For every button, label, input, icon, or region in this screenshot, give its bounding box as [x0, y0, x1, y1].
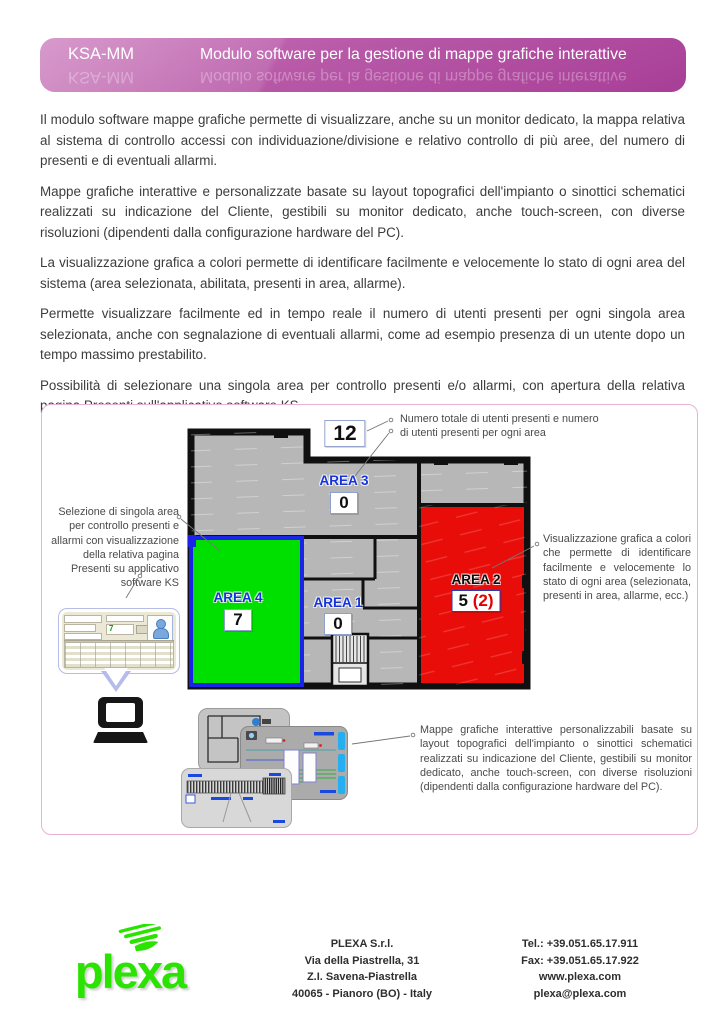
paragraph: La visualizzazione grafica a colori perm…	[40, 253, 685, 294]
body-text: Il modulo software mappe grafiche permet…	[40, 110, 685, 427]
product-code: KSA-MM	[68, 45, 200, 64]
ks-presenti-screenshot: 7	[62, 612, 176, 670]
page-title: Modulo software per la gestione di mappe…	[200, 46, 627, 64]
paragraph: Il modulo software mappe grafiche permet…	[40, 110, 685, 172]
schematic-map-thumbnail	[181, 768, 292, 828]
area3-count-box: 0	[330, 492, 358, 514]
company-contacts: Tel.: +39.051.65.17.911 Fax: +39.051.65.…	[521, 936, 639, 1002]
ks-software-preview-bubble: 7	[58, 608, 180, 674]
annotation-custom-maps: Mappe grafiche interattive personalizzab…	[420, 723, 692, 794]
ks-user-table	[64, 642, 174, 668]
plexa-logo: plexa	[45, 924, 215, 992]
company-address: PLEXA S.r.l. Via della Piastrella, 31 Z.…	[292, 936, 432, 1002]
paragraph: Mappe grafiche interattive e personalizz…	[40, 182, 685, 244]
header-row: KSA-MM Modulo software per la gestione d…	[68, 45, 676, 64]
header-reflection: KSA-MM Modulo software per la gestione d…	[68, 67, 676, 86]
area4-count-box: 7	[224, 609, 252, 631]
stairs-icon	[332, 634, 368, 686]
total-presences-box: 12	[324, 420, 365, 447]
area2-label: AREA 2	[451, 572, 500, 587]
datasheet-page: KSA-MM Modulo software per la gestione d…	[0, 0, 725, 1024]
monitor-icon	[98, 697, 143, 728]
paragraph: Permette visualizzare facilmente ed in t…	[40, 304, 685, 366]
annotation-area-selection: Selezione di singola area per controllo …	[43, 505, 179, 591]
area2-count-box: 5 (2)	[452, 590, 501, 612]
phone-number: Tel.: +39.051.65.17.911	[521, 936, 639, 953]
logo-wordmark: plexa	[45, 952, 215, 992]
area1-label: AREA 1	[313, 595, 362, 610]
annotation-color-states: Visualizzazione grafica a colori che per…	[543, 532, 691, 603]
area2-alarm-count: (2)	[473, 591, 494, 610]
area4-label: AREA 4	[213, 590, 262, 605]
header-band: KSA-MM Modulo software per la gestione d…	[40, 38, 686, 92]
floorplan-map	[186, 427, 532, 691]
fax-number: Fax: +39.051.65.17.922	[521, 953, 639, 970]
email: plexa@plexa.com	[521, 986, 639, 1003]
person-icon	[147, 615, 173, 641]
ks-count: 7	[109, 625, 113, 633]
website: www.plexa.com	[521, 969, 639, 986]
area1-count-box: 0	[324, 613, 352, 635]
area3-label: AREA 3	[319, 473, 368, 488]
